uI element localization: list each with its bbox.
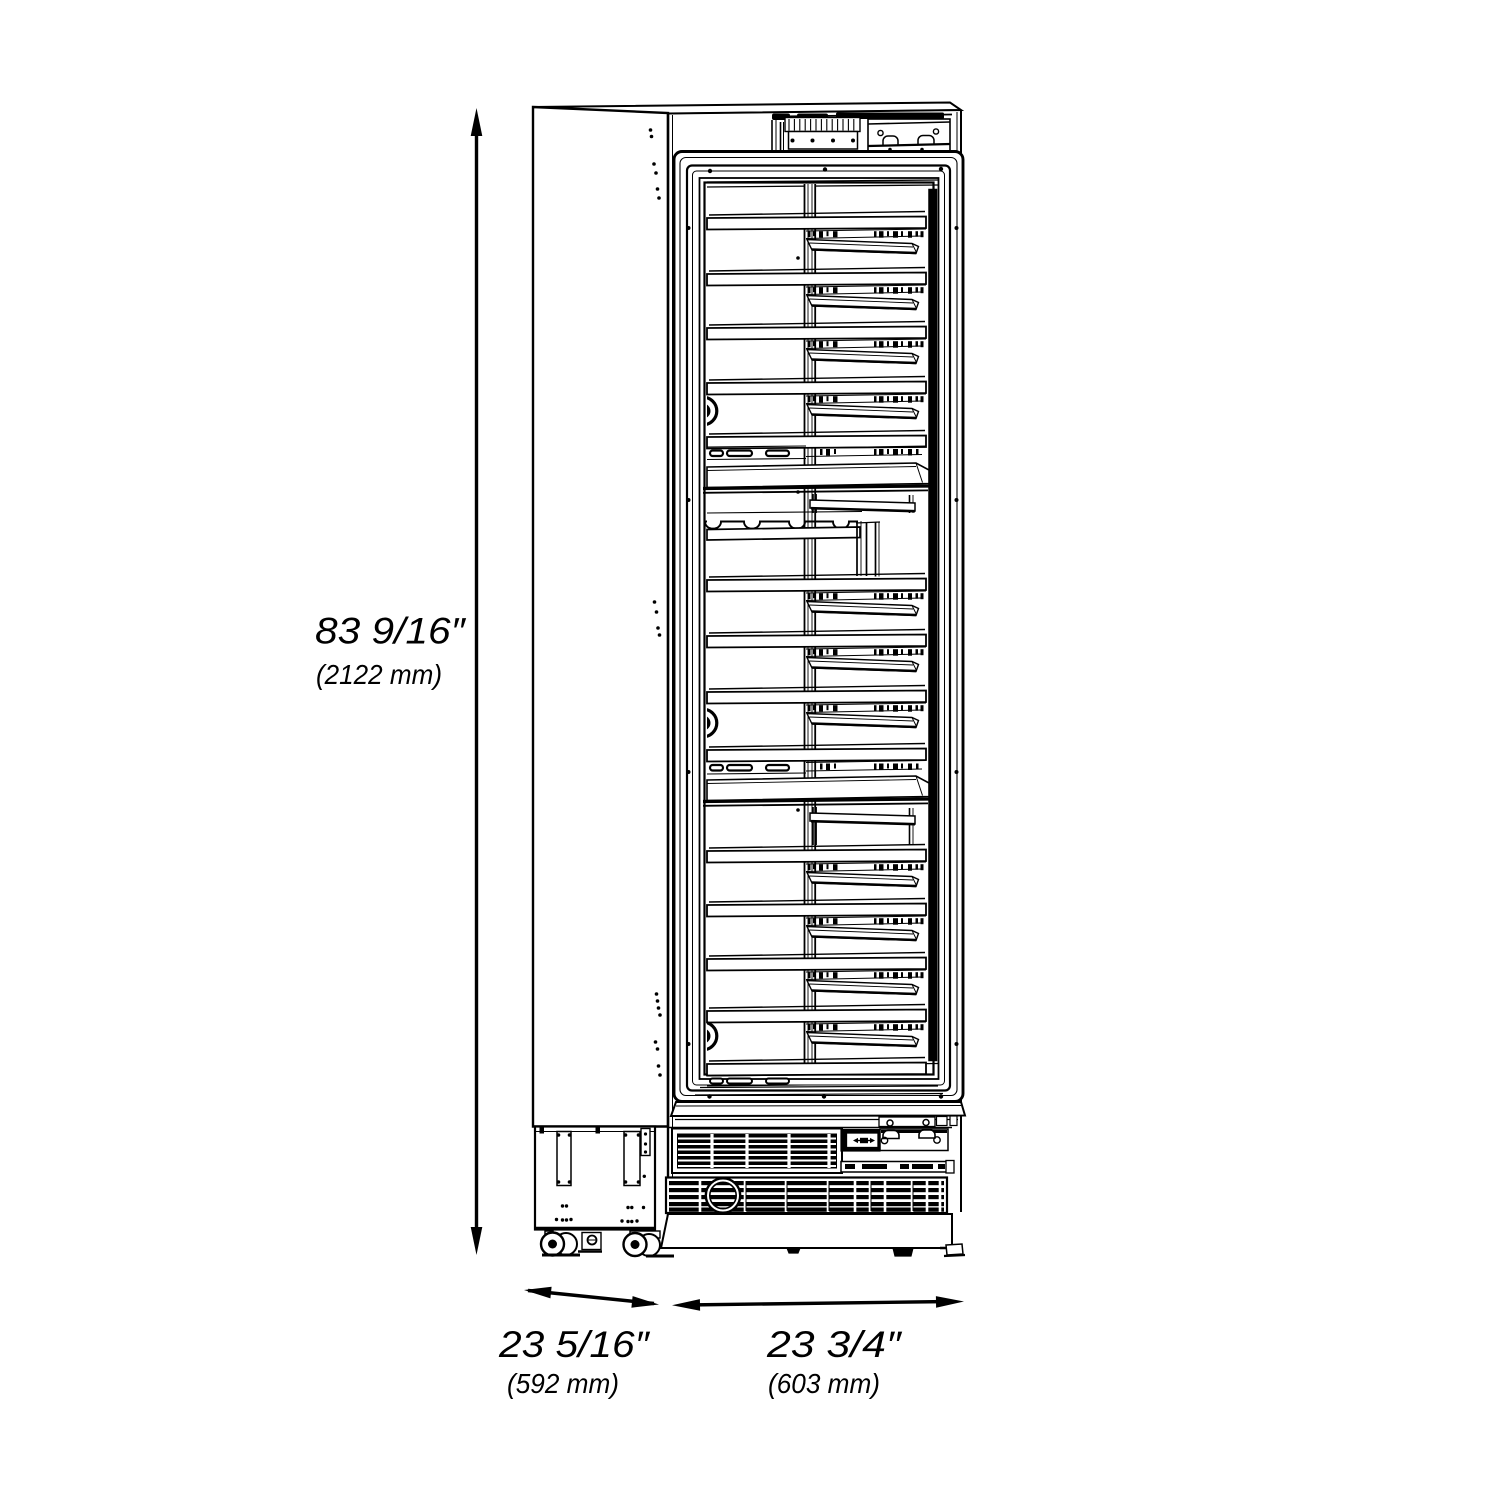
svg-text:(592 mm): (592 mm) xyxy=(507,1368,619,1399)
svg-text:23 5/16″: 23 5/16″ xyxy=(498,1324,651,1365)
svg-text:83 9/16″: 83 9/16″ xyxy=(315,611,467,652)
svg-text:(2122 mm): (2122 mm) xyxy=(316,659,442,690)
svg-text:(603 mm): (603 mm) xyxy=(768,1368,880,1399)
svg-text:23 3/4″: 23 3/4″ xyxy=(766,1324,903,1365)
